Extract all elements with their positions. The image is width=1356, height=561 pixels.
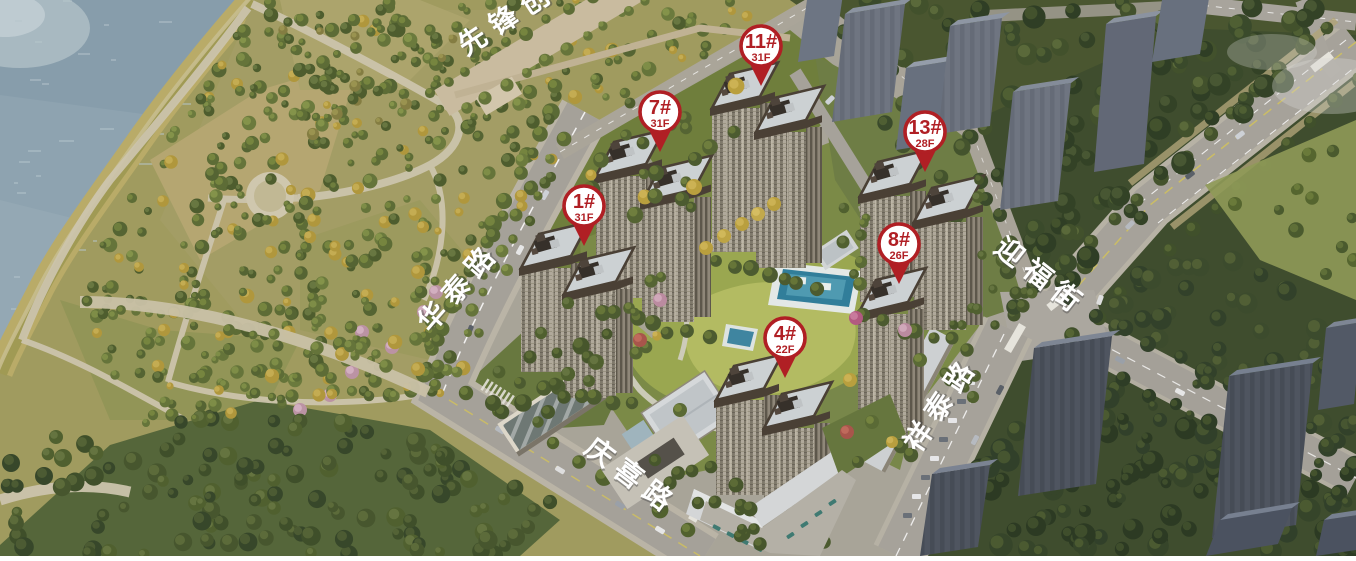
svg-text:31F: 31F xyxy=(752,52,771,64)
svg-text:8#: 8# xyxy=(888,229,910,251)
svg-text:31F: 31F xyxy=(651,118,670,130)
svg-text:22F: 22F xyxy=(776,344,795,356)
svg-text:28F: 28F xyxy=(916,138,935,150)
svg-text:7#: 7# xyxy=(649,97,671,119)
svg-text:1#: 1# xyxy=(573,191,595,213)
svg-text:31F: 31F xyxy=(575,212,594,224)
svg-text:26F: 26F xyxy=(890,250,909,262)
svg-text:11#: 11# xyxy=(745,31,777,53)
svg-text:4#: 4# xyxy=(774,323,796,345)
svg-text:13#: 13# xyxy=(908,117,941,139)
